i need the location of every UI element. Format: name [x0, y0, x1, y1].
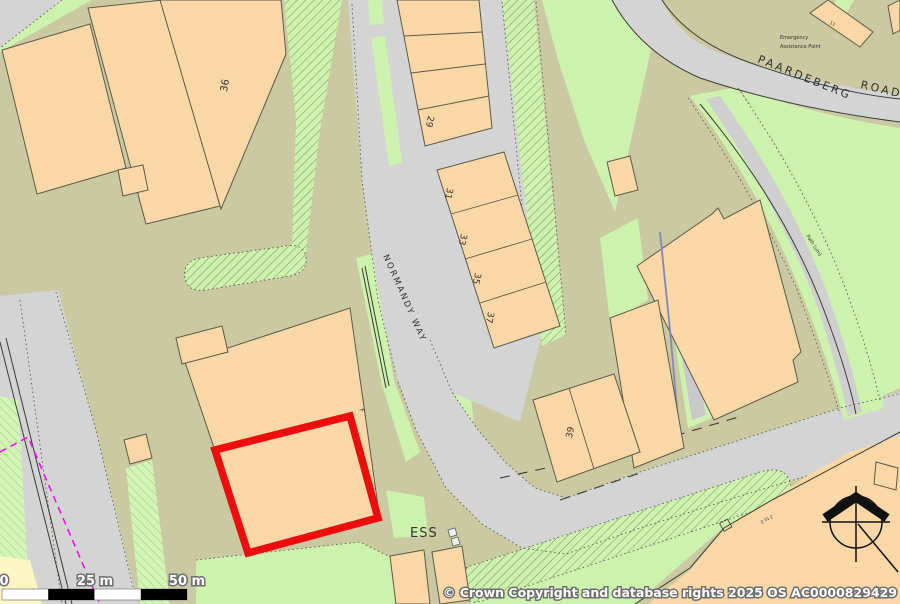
- verge-west-top: [368, 0, 384, 25]
- label-ess: ESS: [410, 526, 438, 541]
- number-36: 36: [219, 78, 232, 92]
- label-emergency-2: Assistance Point: [780, 44, 821, 50]
- map-viewport[interactable]: NORMANDY WAY PAARDEBERG ROAD ESS Emergen…: [0, 0, 900, 604]
- scale-label-0: 0: [0, 574, 9, 589]
- scale-bar-segment: [141, 589, 187, 600]
- building-bottom-a: [390, 550, 430, 604]
- building-36-annex: [118, 165, 148, 196]
- label-emergency-1: Emergency: [780, 35, 808, 41]
- map-canvas[interactable]: NORMANDY WAY PAARDEBERG ROAD ESS Emergen…: [0, 0, 900, 604]
- scale-label-50: 50 m: [169, 574, 205, 589]
- scale-label-25: 25 m: [77, 574, 113, 589]
- copyright-notice: © Crown Copyright and database rights 20…: [443, 585, 897, 600]
- scale-bar-segment: [48, 589, 94, 600]
